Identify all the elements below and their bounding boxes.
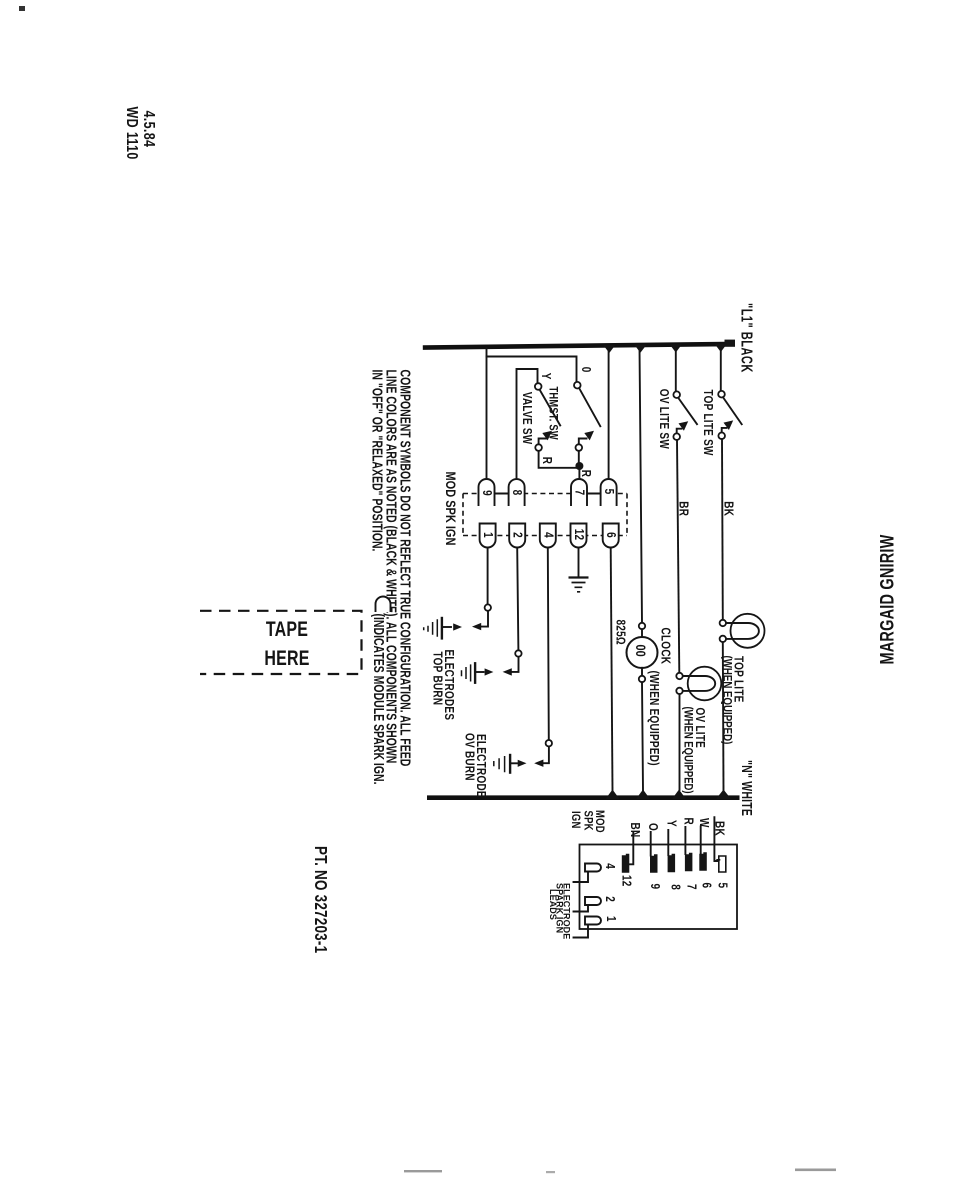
svg-text:(WHEN EQUIPPED): (WHEN EQUIPPED) bbox=[720, 656, 733, 745]
svg-text:1: 1 bbox=[604, 916, 617, 922]
svg-text:2: 2 bbox=[602, 896, 615, 902]
svg-text:LEADS: LEADS bbox=[548, 889, 558, 920]
svg-text:IN "OFF" OR "RELAXED" POSITION: IN "OFF" OR "RELAXED" POSITION. bbox=[369, 370, 386, 552]
svg-text:"L1" BLACK: "L1" BLACK bbox=[738, 303, 755, 373]
svg-text:(WHEN EQUIPPED): (WHEN EQUIPPED) bbox=[681, 707, 694, 794]
svg-text:00: 00 bbox=[633, 645, 649, 657]
svg-text:ELECTRODES: ELECTRODES bbox=[442, 650, 455, 721]
svg-text:5: 5 bbox=[602, 489, 615, 495]
svg-text:4: 4 bbox=[602, 863, 615, 869]
svg-text:HERE: HERE bbox=[264, 646, 309, 670]
svg-text:9: 9 bbox=[480, 490, 493, 496]
svg-text:O: O bbox=[646, 823, 659, 831]
svg-text:R: R bbox=[578, 470, 591, 478]
svg-text:Y: Y bbox=[538, 373, 551, 380]
svg-text:Y: Y bbox=[664, 820, 677, 827]
svg-text:MARGAID GNIRIW: MARGAID GNIRIW bbox=[877, 535, 898, 665]
svg-text:CLOCK: CLOCK bbox=[658, 628, 671, 665]
svg-text:WD 1110: WD 1110 bbox=[123, 107, 141, 160]
svg-text:PT. NO 327203-1: PT. NO 327203-1 bbox=[310, 846, 329, 953]
svg-text:W: W bbox=[697, 818, 710, 828]
svg-text:IGN: IGN bbox=[569, 811, 582, 829]
svg-text:7: 7 bbox=[684, 884, 697, 890]
svg-text:OV LITE SW: OV LITE SW bbox=[656, 389, 669, 449]
svg-text:OV LITE: OV LITE bbox=[693, 708, 706, 749]
svg-text:5: 5 bbox=[715, 883, 728, 889]
svg-text:OV BURN: OV BURN bbox=[462, 733, 475, 781]
svg-text:6: 6 bbox=[604, 532, 617, 538]
svg-text:7: 7 bbox=[572, 490, 585, 496]
svg-text:R: R bbox=[681, 818, 694, 826]
svg-text:9: 9 bbox=[648, 884, 661, 890]
svg-text:8: 8 bbox=[668, 884, 681, 890]
svg-text:TOP LITE SW: TOP LITE SW bbox=[700, 390, 713, 456]
svg-text:VALVE SW: VALVE SW bbox=[519, 392, 532, 445]
svg-text:TAPE: TAPE bbox=[266, 617, 308, 641]
svg-text:TOP BURN: TOP BURN bbox=[430, 652, 443, 706]
svg-text:SPK: SPK bbox=[581, 811, 594, 831]
svg-text:12: 12 bbox=[572, 529, 585, 541]
svg-text:(INDICATES MODULE SPARK IGN.: (INDICATES MODULE SPARK IGN. bbox=[371, 614, 388, 785]
svg-text:6: 6 bbox=[699, 883, 712, 889]
svg-text:(WHEN EQUIPPED): (WHEN EQUIPPED) bbox=[647, 671, 660, 766]
svg-text:"N" WHITE: "N" WHITE bbox=[739, 760, 756, 816]
svg-text:0: 0 bbox=[578, 367, 591, 373]
svg-text:12: 12 bbox=[619, 875, 632, 887]
svg-text:1: 1 bbox=[481, 532, 494, 538]
svg-text:4.5.84: 4.5.84 bbox=[139, 111, 157, 148]
svg-text:825Ω: 825Ω bbox=[613, 620, 626, 645]
svg-text:MOD SPK IGN: MOD SPK IGN bbox=[443, 472, 459, 546]
svg-text:2: 2 bbox=[510, 532, 523, 538]
svg-text:4: 4 bbox=[541, 532, 554, 538]
svg-text:8: 8 bbox=[510, 490, 523, 496]
svg-text:R: R bbox=[540, 457, 553, 465]
svg-text:ELECTRODE: ELECTRODE bbox=[474, 734, 487, 798]
svg-text:MOD: MOD bbox=[593, 810, 606, 833]
